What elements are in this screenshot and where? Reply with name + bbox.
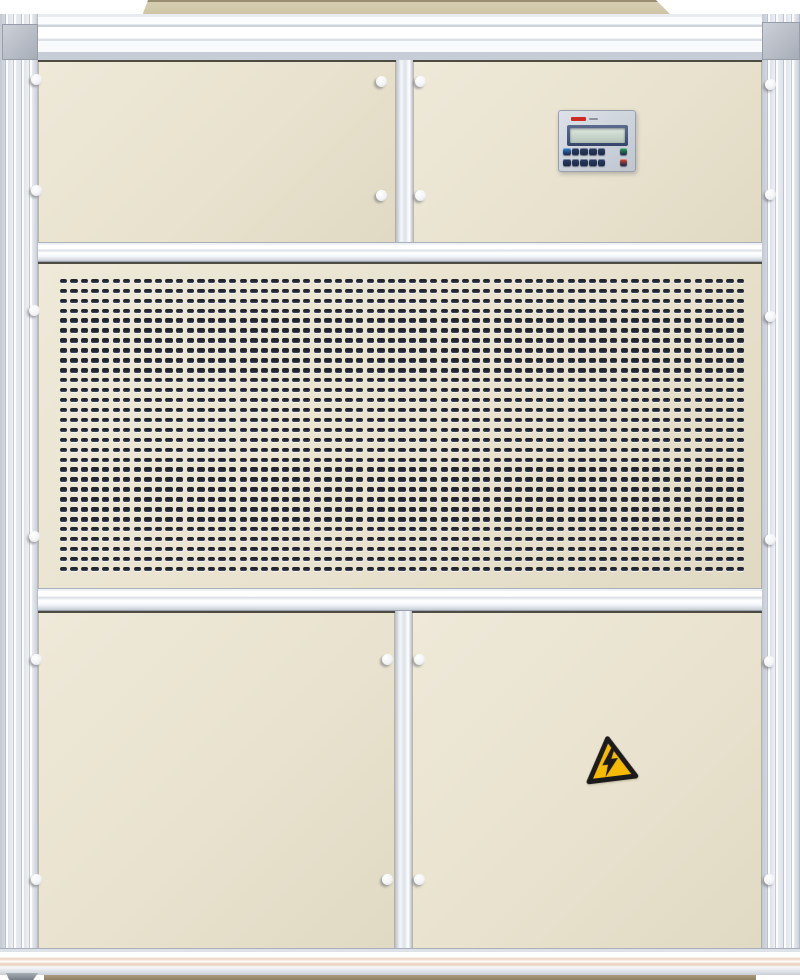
grille-slot	[102, 467, 109, 471]
grille-slot	[716, 497, 723, 501]
grille-slot	[674, 348, 681, 352]
upper-left-panel	[38, 60, 396, 242]
grille-slot	[695, 318, 702, 322]
grille-slot	[356, 378, 363, 382]
grille-slot	[240, 418, 247, 422]
grille-slot	[356, 299, 363, 303]
grille-slot	[546, 428, 553, 432]
grille-slot	[335, 537, 342, 541]
grille-slot	[292, 299, 299, 303]
grille-slot	[705, 547, 712, 551]
grille-slot	[430, 318, 437, 322]
grille-slot	[451, 448, 458, 452]
grille-slot	[409, 378, 416, 382]
grille-slot	[451, 328, 458, 332]
grille-slot	[176, 507, 183, 511]
grille-slot	[229, 527, 236, 531]
grille-slot	[81, 289, 88, 293]
grille-slot	[451, 487, 458, 491]
grille-slot	[377, 557, 384, 561]
grille-slot	[324, 547, 331, 551]
grille-slot	[208, 477, 215, 481]
grille-slot	[568, 467, 575, 471]
grille-slot	[113, 328, 120, 332]
grille-slot	[303, 537, 310, 541]
grille-slot	[504, 438, 511, 442]
grille-slot	[419, 567, 426, 571]
grille-slot	[494, 547, 501, 551]
grille-slot	[144, 358, 151, 362]
grille-slot	[388, 477, 395, 481]
grille-slot	[705, 388, 712, 392]
grille-slot	[282, 428, 289, 432]
grille-slot	[737, 289, 744, 293]
grille-slot	[525, 289, 532, 293]
grille-slot	[568, 497, 575, 501]
grille-slot	[81, 318, 88, 322]
grille-slot	[314, 438, 321, 442]
grille-panel	[38, 262, 762, 588]
grille-slot	[250, 507, 257, 511]
grille-slot	[70, 368, 77, 372]
grille-slot	[695, 458, 702, 462]
grille-slot	[282, 299, 289, 303]
grille-slot	[652, 507, 659, 511]
controller-lcd-screen	[570, 128, 625, 143]
grille-slot	[663, 557, 670, 561]
grille-slot	[271, 348, 278, 352]
grille-slot	[441, 378, 448, 382]
grille-slot	[250, 398, 257, 402]
grille-slot	[631, 289, 638, 293]
grille-slot	[716, 438, 723, 442]
grille-slot	[123, 507, 130, 511]
grille-slot	[102, 527, 109, 531]
grille-slot	[398, 398, 405, 402]
grille-slot	[229, 368, 236, 372]
grille-slot	[515, 378, 522, 382]
grille-slot	[250, 318, 257, 322]
grille-slot	[409, 388, 416, 392]
grille-slot	[187, 497, 194, 501]
grille-slot	[282, 398, 289, 402]
grille-slot	[684, 477, 691, 481]
grille-slot	[504, 487, 511, 491]
grille-slot	[282, 378, 289, 382]
grille-slot	[525, 458, 532, 462]
grille-slot	[716, 368, 723, 372]
grille-slot	[557, 458, 564, 462]
grille-slot	[525, 467, 532, 471]
grille-slot	[451, 289, 458, 293]
grille-slot	[134, 289, 141, 293]
grille-slot	[525, 279, 532, 283]
grille-slot	[292, 467, 299, 471]
grille-slot	[377, 328, 384, 332]
grille-slot	[610, 309, 617, 313]
grille-slot	[91, 309, 98, 313]
grille-slot	[271, 428, 278, 432]
grille-slot	[472, 368, 479, 372]
grille-slot	[430, 567, 437, 571]
grille-slot	[430, 338, 437, 342]
grille-slot	[335, 418, 342, 422]
grille-slot	[240, 507, 247, 511]
grille-slot	[684, 378, 691, 382]
grille-slot	[345, 309, 352, 313]
grille-slot	[303, 567, 310, 571]
grille-slot	[462, 497, 469, 501]
grille-slot	[356, 338, 363, 342]
grille-slot	[240, 497, 247, 501]
grille-slot	[165, 477, 172, 481]
grille-slot	[91, 378, 98, 382]
grille-slot	[568, 358, 575, 362]
grille-slot	[684, 289, 691, 293]
grille-slot	[483, 567, 490, 571]
grille-slot	[494, 408, 501, 412]
grille-slot	[515, 289, 522, 293]
grille-slot	[451, 567, 458, 571]
grille-slot	[494, 487, 501, 491]
grille-slot	[684, 328, 691, 332]
grille-slot	[388, 507, 395, 511]
grille-slot	[229, 299, 236, 303]
grille-slot	[462, 517, 469, 521]
frame-rail-right	[762, 14, 800, 975]
grille-slot	[504, 388, 511, 392]
grille-slot	[81, 309, 88, 313]
grille-slot	[250, 547, 257, 551]
grille-slot	[472, 507, 479, 511]
grille-slot	[430, 438, 437, 442]
grille-slot	[314, 368, 321, 372]
grille-slot	[705, 378, 712, 382]
grille-slot	[303, 299, 310, 303]
grille-slot	[377, 358, 384, 362]
grille-slot	[314, 299, 321, 303]
grille-slot	[367, 418, 374, 422]
frame-corner-cap-left	[2, 24, 38, 60]
grille-slot	[684, 398, 691, 402]
grille-slot	[705, 467, 712, 471]
grille-slot	[282, 477, 289, 481]
grille-slot	[240, 328, 247, 332]
grille-slot	[187, 309, 194, 313]
grille-slot	[557, 477, 564, 481]
grille-slot	[367, 338, 374, 342]
grille-slot	[91, 368, 98, 372]
grille-slot	[324, 358, 331, 362]
grille-slot	[218, 487, 225, 491]
grille-slot	[70, 328, 77, 332]
panel-fastener-knob	[31, 185, 42, 196]
grille-slot	[367, 388, 374, 392]
grille-slot	[525, 567, 532, 571]
grille-slot	[515, 328, 522, 332]
grille-slot	[695, 418, 702, 422]
grille-slot	[303, 458, 310, 462]
grille-slot	[134, 507, 141, 511]
grille-slot	[388, 398, 395, 402]
grille-slot	[134, 299, 141, 303]
grille-slot	[546, 527, 553, 531]
grille-slot	[134, 567, 141, 571]
grille-slot	[621, 318, 628, 322]
grille-slot	[292, 517, 299, 521]
grille-slot	[335, 338, 342, 342]
grille-slot	[240, 368, 247, 372]
grille-slot	[430, 408, 437, 412]
grille-slot	[599, 527, 606, 531]
grille-slot	[568, 368, 575, 372]
grille-slot	[546, 497, 553, 501]
grille-slot	[187, 458, 194, 462]
grille-slot	[388, 338, 395, 342]
grille-slot	[578, 318, 585, 322]
grille-slot	[726, 467, 733, 471]
grille-slot	[557, 517, 564, 521]
grille-slot	[240, 378, 247, 382]
grille-slot	[652, 348, 659, 352]
grille-slot	[462, 299, 469, 303]
grille-slot	[451, 388, 458, 392]
grille-slot	[208, 348, 215, 352]
grille-slot	[81, 279, 88, 283]
grille-slot	[663, 438, 670, 442]
grille-slot	[631, 318, 638, 322]
grille-slot	[652, 487, 659, 491]
grille-slot	[218, 358, 225, 362]
grille-slot	[398, 467, 405, 471]
grille-slot	[621, 567, 628, 571]
grille-slot	[165, 338, 172, 342]
grille-slot	[631, 507, 638, 511]
grille-slot	[292, 448, 299, 452]
grille-slot	[451, 477, 458, 481]
grille-slot	[536, 398, 543, 402]
grille-slot	[621, 517, 628, 521]
grille-slot	[240, 398, 247, 402]
grille-slot	[716, 428, 723, 432]
grille-slot	[261, 279, 268, 283]
grille-slot	[462, 408, 469, 412]
grille-slot	[398, 328, 405, 332]
grille-slot	[674, 517, 681, 521]
grille-slot	[134, 318, 141, 322]
grille-slot	[388, 458, 395, 462]
grille-slot	[176, 289, 183, 293]
grille-slot	[81, 338, 88, 342]
grille-slot	[652, 398, 659, 402]
grille-slot	[240, 289, 247, 293]
grille-slot	[430, 487, 437, 491]
grille-slot	[462, 388, 469, 392]
grille-slot	[621, 527, 628, 531]
grille-slot	[525, 497, 532, 501]
controller-keypad-row2	[559, 159, 637, 167]
grille-slot	[515, 348, 522, 352]
grille-slot	[631, 547, 638, 551]
grille-slot	[102, 507, 109, 511]
grille-slot	[356, 408, 363, 412]
grille-slot	[621, 497, 628, 501]
grille-slot	[197, 487, 204, 491]
grille-slot	[515, 537, 522, 541]
grille-slot	[568, 398, 575, 402]
grille-slot	[292, 328, 299, 332]
grille-slot	[716, 348, 723, 352]
grille-slot	[483, 358, 490, 362]
grille-slot	[705, 517, 712, 521]
grille-slot	[409, 358, 416, 362]
grille-slot	[578, 338, 585, 342]
grille-slot	[515, 527, 522, 531]
panel-fastener-knob	[765, 534, 776, 545]
grille-slot	[113, 318, 120, 322]
grille-slot	[419, 477, 426, 481]
grille-slot	[388, 378, 395, 382]
grille-slot	[314, 567, 321, 571]
grille-slot	[113, 289, 120, 293]
grille-slot	[197, 408, 204, 412]
grille-slot	[483, 537, 490, 541]
grille-slot	[546, 448, 553, 452]
grille-slot	[324, 557, 331, 561]
grille-slot	[303, 398, 310, 402]
grille-slot	[91, 398, 98, 402]
grille-slot	[70, 497, 77, 501]
grille-slot	[663, 378, 670, 382]
grille-slot	[716, 467, 723, 471]
grille-slot	[610, 477, 617, 481]
grille-slot	[81, 467, 88, 471]
grille-slot	[515, 458, 522, 462]
grille-slot	[515, 438, 522, 442]
grille-slot	[642, 309, 649, 313]
grille-slot	[335, 438, 342, 442]
grille-slot	[631, 418, 638, 422]
grille-slot	[324, 477, 331, 481]
grille-slot	[314, 358, 321, 362]
controller-lcd	[567, 125, 628, 146]
grille-slot	[81, 487, 88, 491]
grille-slot	[155, 527, 162, 531]
grille-slot	[187, 547, 194, 551]
grille-slot	[261, 328, 268, 332]
grille-slot	[631, 338, 638, 342]
grille-slot	[494, 398, 501, 402]
grille-slot	[419, 289, 426, 293]
grille-slot	[589, 378, 596, 382]
grille-slot	[102, 428, 109, 432]
grille-slot	[716, 487, 723, 491]
grille-slot	[568, 378, 575, 382]
panel-fastener-knob	[382, 874, 393, 885]
grille-slot	[483, 338, 490, 342]
grille-slot	[377, 547, 384, 551]
grille-slot	[409, 289, 416, 293]
grille-slot	[165, 289, 172, 293]
grille-slot	[271, 378, 278, 382]
grille-slot	[324, 487, 331, 491]
grille-slot	[462, 279, 469, 283]
grille-slot	[663, 398, 670, 402]
grille-slot	[589, 547, 596, 551]
grille-slot	[663, 348, 670, 352]
grille-slot	[663, 477, 670, 481]
grille-slot	[60, 487, 67, 491]
grille-slot	[314, 338, 321, 342]
grille-slot	[695, 507, 702, 511]
grille-slot	[176, 497, 183, 501]
grille-slot	[70, 547, 77, 551]
grille-slot	[335, 517, 342, 521]
grille-slot	[695, 467, 702, 471]
grille-slot	[726, 557, 733, 561]
grille-slot	[515, 309, 522, 313]
grille-slot	[356, 557, 363, 561]
grille-slot	[599, 289, 606, 293]
grille-slot	[356, 289, 363, 293]
grille-slot	[81, 477, 88, 481]
grille-slot	[483, 517, 490, 521]
grille-slot	[377, 527, 384, 531]
grille-slot	[716, 388, 723, 392]
grille-slot	[261, 378, 268, 382]
grille-slot	[60, 289, 67, 293]
grille-slot	[324, 348, 331, 352]
grille-slot	[134, 388, 141, 392]
grille-slot	[303, 438, 310, 442]
grille-slot	[187, 527, 194, 531]
grille-slot	[568, 517, 575, 521]
grille-slot	[589, 348, 596, 352]
grille-slot	[176, 338, 183, 342]
grille-slot	[589, 388, 596, 392]
grille-slot	[123, 388, 130, 392]
grille-slot	[504, 467, 511, 471]
grille-slot	[271, 388, 278, 392]
grille-slot	[292, 537, 299, 541]
grille-slot	[610, 487, 617, 491]
grille-slot	[345, 507, 352, 511]
grille-slot	[303, 348, 310, 352]
grille-slot	[504, 289, 511, 293]
grille-slot	[546, 279, 553, 283]
grille-slot	[674, 477, 681, 481]
grille-slot	[546, 338, 553, 342]
grille-slot	[737, 567, 744, 571]
grille-slot	[451, 338, 458, 342]
grille-slot	[483, 448, 490, 452]
grille-slot	[388, 537, 395, 541]
grille-slot	[578, 557, 585, 561]
grille-slot	[187, 358, 194, 362]
grille-slot	[102, 318, 109, 322]
grille-slot	[197, 438, 204, 442]
equipment-photo	[0, 0, 800, 980]
grille-slot	[409, 517, 416, 521]
grille-slot	[144, 507, 151, 511]
grille-slot	[674, 418, 681, 422]
grille-slot	[292, 408, 299, 412]
grille-slot	[218, 507, 225, 511]
grille-slot	[483, 428, 490, 432]
grille-slot	[451, 537, 458, 541]
grille-slot	[695, 338, 702, 342]
grille-slot	[367, 557, 374, 561]
